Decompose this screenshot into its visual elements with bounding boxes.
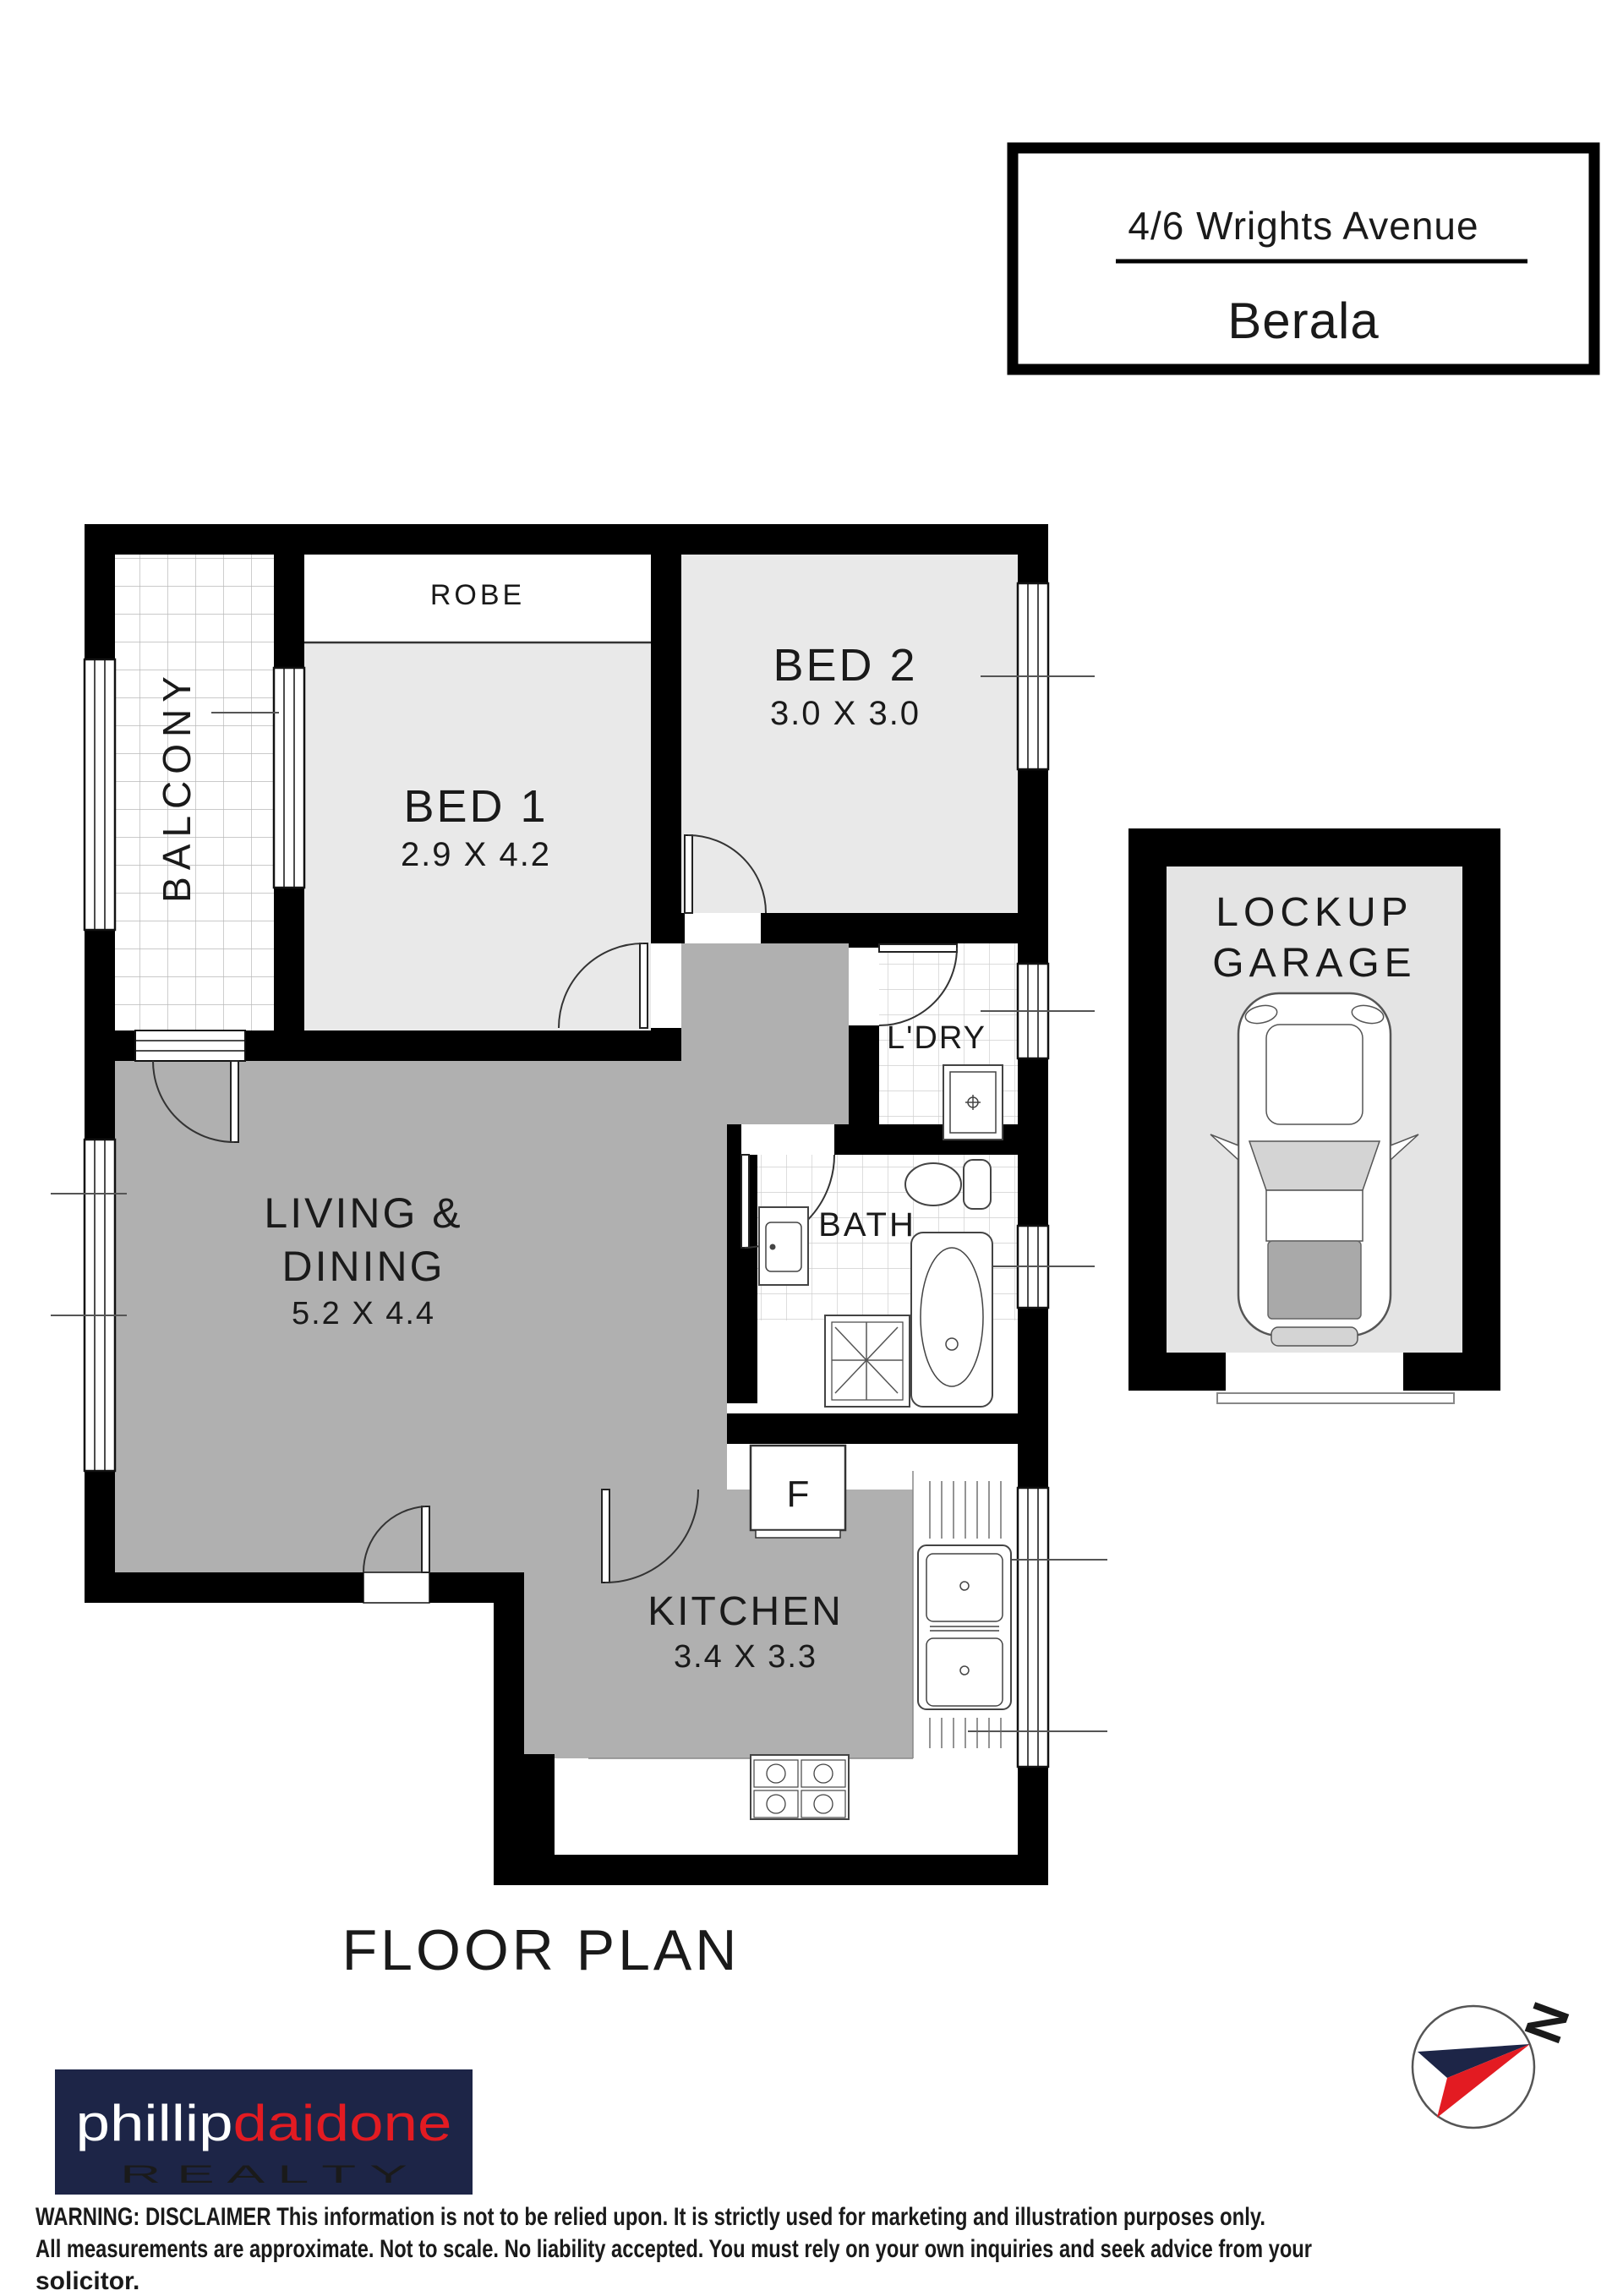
car-top-view-icon: [1210, 993, 1418, 1346]
window-living-left: [85, 1140, 115, 1471]
bath-vanity: [759, 1207, 808, 1285]
garage-label-line1: LOCKUP: [1216, 890, 1413, 935]
living-label-line1: LIVING &: [264, 1189, 462, 1237]
bed2-label: BED 2: [773, 640, 917, 691]
kitchen-dims: 3.4 X 3.3: [674, 1639, 817, 1675]
logo-tagline: R E A L T Y: [120, 2161, 407, 2189]
bed2-dims: 3.0 X 3.0: [770, 695, 921, 732]
address-line: 4/6 Wrights Avenue: [1128, 204, 1478, 248]
balcony-label: BALCONY: [155, 670, 199, 903]
fridge-label: F: [787, 1473, 810, 1515]
garage: LOCKUP GARAGE: [1128, 828, 1500, 1403]
floor-plan: F: [51, 524, 1107, 1885]
north-compass: N: [1413, 1995, 1582, 2128]
hall-floor: [681, 943, 849, 1124]
bed1-dims: 2.9 X 4.2: [401, 836, 551, 873]
bathtub: [911, 1233, 992, 1407]
address-box: 4/6 Wrights Avenue Berala: [1013, 148, 1594, 369]
bath-label: BATH: [818, 1206, 916, 1244]
disclaimer-line3: solicitor.: [36, 2267, 139, 2295]
garage-door-line: [1217, 1393, 1454, 1403]
corridor-floor: [681, 1124, 727, 1501]
logo-name-part2: daidone: [233, 2095, 452, 2151]
floor-plan-canvas: 4/6 Wrights Avenue Berala: [0, 0, 1623, 2296]
kitchen-sink: [918, 1481, 1011, 1748]
toilet: [905, 1160, 991, 1209]
logo-name-part1: phillip: [76, 2095, 233, 2151]
laundry-label: L'DRY: [887, 1020, 986, 1056]
robe-label: ROBE: [430, 579, 525, 611]
disclaimer-line2: All measurements are approximate. Not to…: [36, 2235, 1312, 2263]
fridge: F: [751, 1446, 845, 1538]
window-balcony-left: [85, 659, 115, 930]
plan-title: FLOOR PLAN: [342, 1918, 740, 1982]
living-label-line2: DINING: [282, 1243, 445, 1290]
laundry-tub: [943, 1065, 1003, 1140]
garage-label-line2: GARAGE: [1212, 941, 1416, 986]
bed2-floor: [681, 555, 1018, 913]
bed1-label: BED 1: [403, 781, 548, 832]
window-bed1-balcony: [274, 668, 304, 888]
shower: [825, 1315, 910, 1407]
stove: [751, 1755, 849, 1819]
living-dims: 5.2 X 4.4: [292, 1296, 435, 1331]
disclaimer-line1: WARNING: DISCLAIMER This information is …: [36, 2203, 1265, 2231]
disclaimer: WARNING: DISCLAIMER This information is …: [36, 2203, 1312, 2295]
floor-plan-page: 4/6 Wrights Avenue Berala: [0, 0, 1623, 2296]
window-kitchen-right: [1018, 1488, 1048, 1767]
agency-logo: phillipdaidone R E A L T Y: [55, 2069, 473, 2195]
suburb-label: Berala: [1227, 292, 1379, 349]
logo-wordmark: phillipdaidone: [76, 2095, 452, 2151]
kitchen-label: KITCHEN: [648, 1589, 844, 1634]
